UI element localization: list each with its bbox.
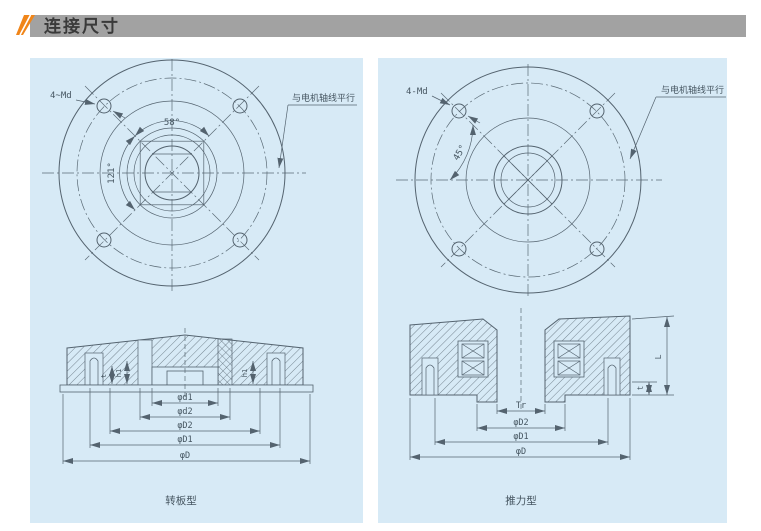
right-flange-front-view: 4-Md 45° 与电机轴线平行 xyxy=(396,64,726,298)
right-vertical-dims: L t xyxy=(632,316,674,395)
section-title: 连接尺寸 xyxy=(44,16,120,37)
left-dim-h1: h1 xyxy=(115,369,123,377)
catalog-page: 连接尺寸 xyxy=(0,0,761,531)
panel-left-drawing: 4~Md 58° 121° 与电机轴线平行 xyxy=(30,58,363,523)
left-flange-front-view: 4~Md 58° 121° 与电机轴线平行 xyxy=(42,59,357,292)
left-dimension-chain: φd1 φd2 φD2 φD1 φD xyxy=(63,388,310,464)
left-angle-top-label: 58° xyxy=(164,118,180,128)
right-dim-D1: φD1 xyxy=(513,432,528,442)
left-bolt-label: 4~Md xyxy=(50,91,72,101)
left-dim-d2: φd2 xyxy=(177,407,192,417)
panel-right-drawing: 4-Md 45° 与电机轴线平行 xyxy=(378,58,727,523)
right-angle-top-label: 45° xyxy=(452,143,469,162)
left-dim-D1: φD1 xyxy=(177,435,192,445)
right-caption: 推力型 xyxy=(505,494,537,507)
section-header-bar: 连接尺寸 xyxy=(30,15,746,37)
left-angle-side-label: 121° xyxy=(107,162,117,184)
left-caption: 转板型 xyxy=(165,494,197,507)
left-cross-section: t h1 h1 xyxy=(60,328,313,400)
left-dim-h1b: h1 xyxy=(241,369,249,377)
right-dim-Tr: Tr xyxy=(516,401,526,411)
right-dimension-chain: Tr φD2 φD1 φD xyxy=(410,398,630,460)
right-dim-t: t xyxy=(636,386,645,391)
section-marker-icon xyxy=(14,12,40,38)
right-dim-L: L xyxy=(654,354,663,359)
right-dim-D2: φD2 xyxy=(513,418,528,428)
left-axis-note: 与电机轴线平行 xyxy=(292,92,355,103)
right-bolt-label: 4-Md xyxy=(406,87,428,97)
right-dim-D: φD xyxy=(516,447,526,457)
left-dim-t: t xyxy=(100,374,108,378)
right-cross-section xyxy=(410,308,630,410)
left-dim-D2: φD2 xyxy=(177,421,192,431)
left-dim-d1: φd1 xyxy=(177,393,192,403)
left-dim-D: φD xyxy=(180,451,190,461)
right-axis-note: 与电机轴线平行 xyxy=(661,84,724,95)
